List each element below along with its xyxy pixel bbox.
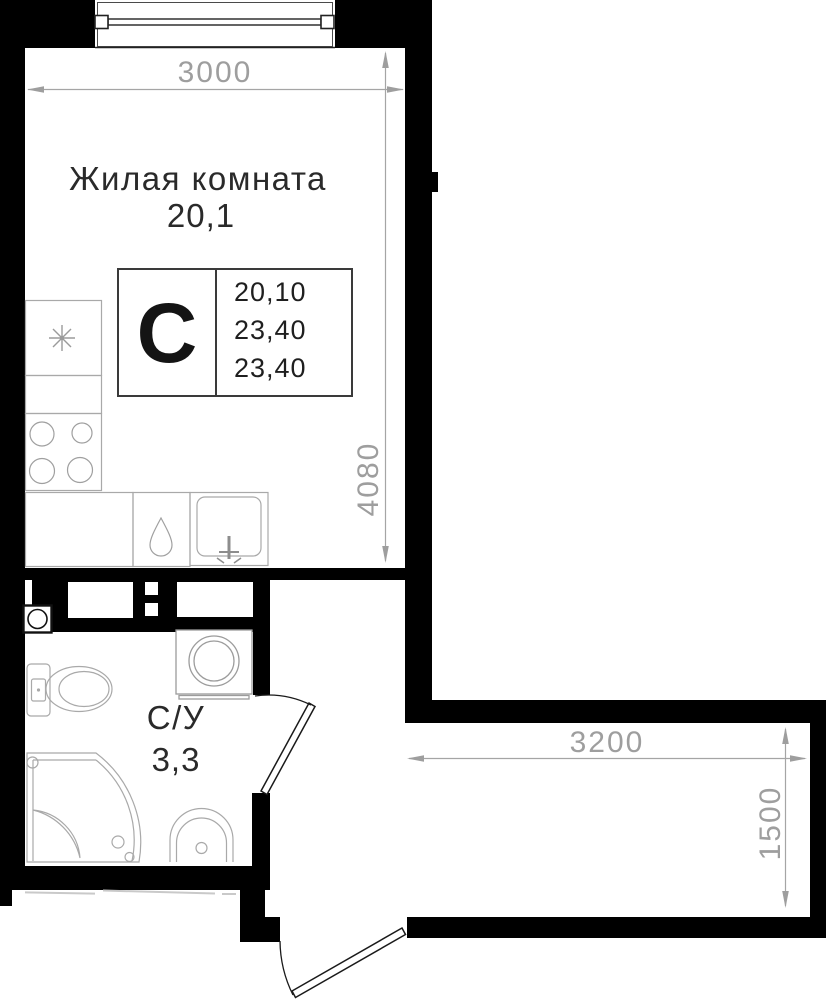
apartment-stamp-values: 20,10 23,40 23,40 [217, 270, 351, 395]
kitchen-counter [26, 376, 269, 567]
kitchen-sink [197, 497, 261, 563]
stamp-value-reduced: 23,40 [234, 349, 351, 387]
stamp-value-total: 23,40 [234, 311, 351, 349]
stamp-value-living: 20,10 [234, 273, 351, 311]
entry-door [280, 928, 406, 998]
living-room-area: 20,1 [41, 197, 361, 235]
water-drop-icon [150, 518, 172, 556]
bathroom-door [255, 695, 315, 794]
bathroom-area: 3,3 [116, 741, 236, 779]
living-room-label: Жилая комната [38, 160, 358, 198]
apartment-type-letter: С [119, 270, 217, 395]
dimension-top-label: 3000 [105, 56, 325, 90]
bathroom-label: С/У [116, 699, 236, 737]
apartment-stamp: С 20,10 23,40 23,40 [117, 268, 353, 397]
window [95, 3, 335, 48]
dimension-hall-depth-label: 1500 [754, 753, 788, 893]
fridge-snowflake-icon [49, 325, 75, 351]
washing-machine [176, 630, 252, 699]
dimension-hall-width-label: 3200 [497, 726, 717, 760]
bathroom-sink [170, 809, 233, 862]
toilet [27, 664, 112, 716]
floor-plan: 3000 4080 3200 1500 Жилая комната 20,1 С… [0, 0, 826, 1000]
dimension-side-label: 4080 [352, 409, 386, 549]
plan-linework [0, 0, 826, 1000]
stove-burners [30, 422, 93, 484]
vent-shaft [24, 606, 52, 633]
